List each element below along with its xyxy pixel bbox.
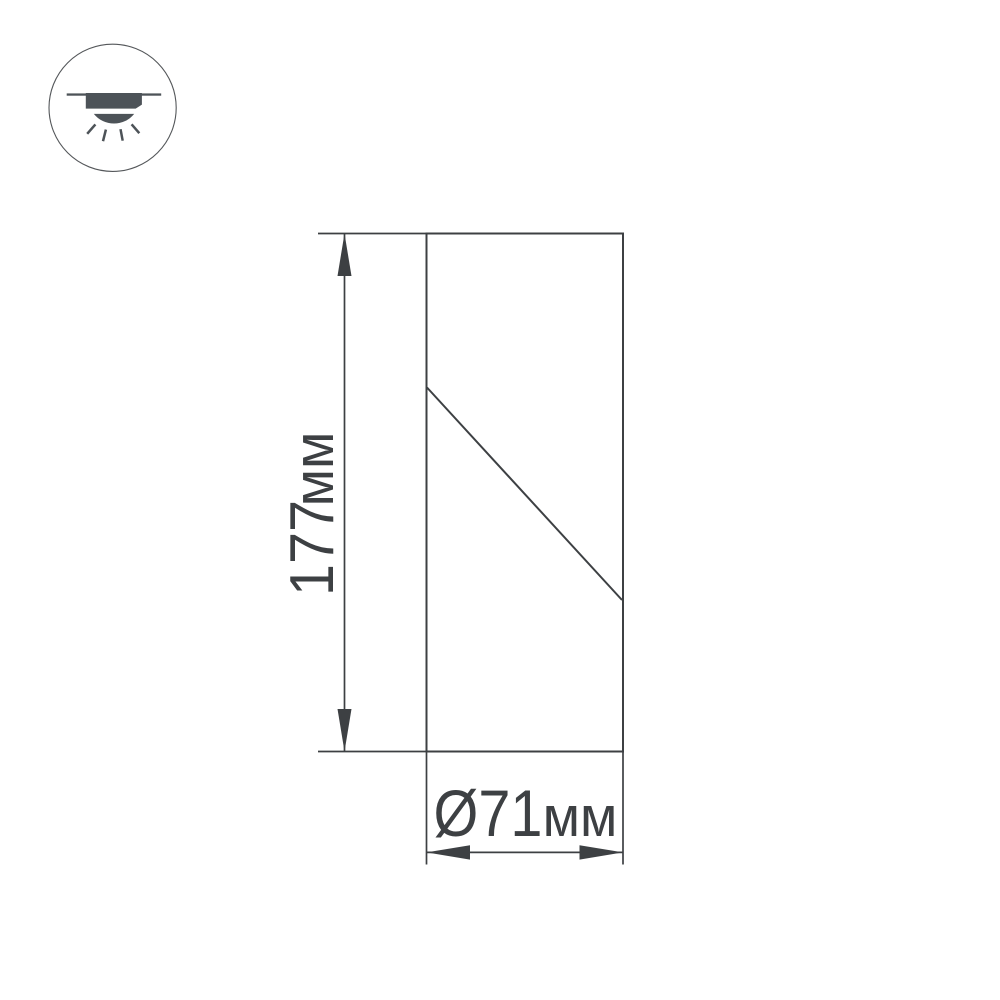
svg-text:мм: мм [543,785,618,849]
svg-text:мм: мм [282,432,346,507]
svg-text:Ø71: Ø71 [434,776,543,850]
svg-text:177: 177 [278,500,347,596]
